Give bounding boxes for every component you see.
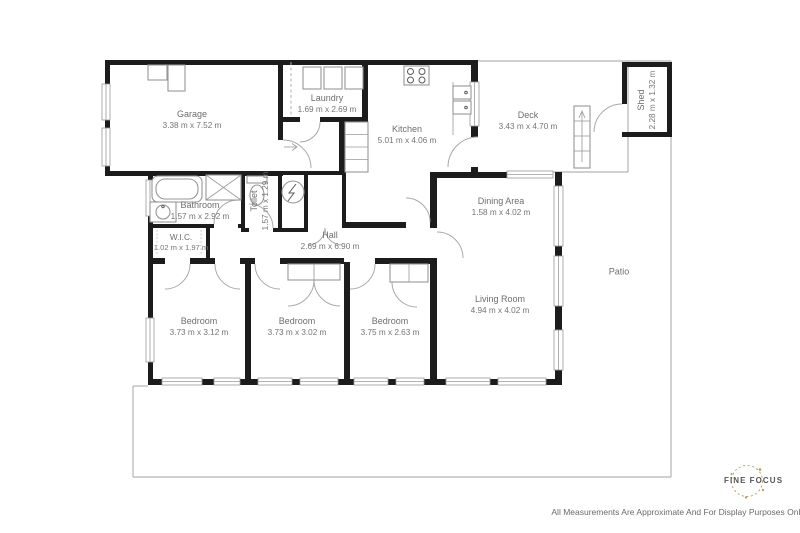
windows [102, 82, 563, 385]
logo-word-fine: FINE [724, 476, 747, 485]
logo-word-focus: FOCUS [750, 476, 784, 485]
disclaimer-text: All Measurements Are Approximate And For… [551, 507, 800, 517]
fine-focus-logo: FINEFOCUS [724, 463, 798, 499]
floor-plan-page: Garage 3.38 m x 7.52 m Laundry 1.69 m x … [0, 0, 800, 533]
logo-text: FINEFOCUS [724, 476, 786, 485]
floor-plan-drawing [0, 0, 800, 533]
